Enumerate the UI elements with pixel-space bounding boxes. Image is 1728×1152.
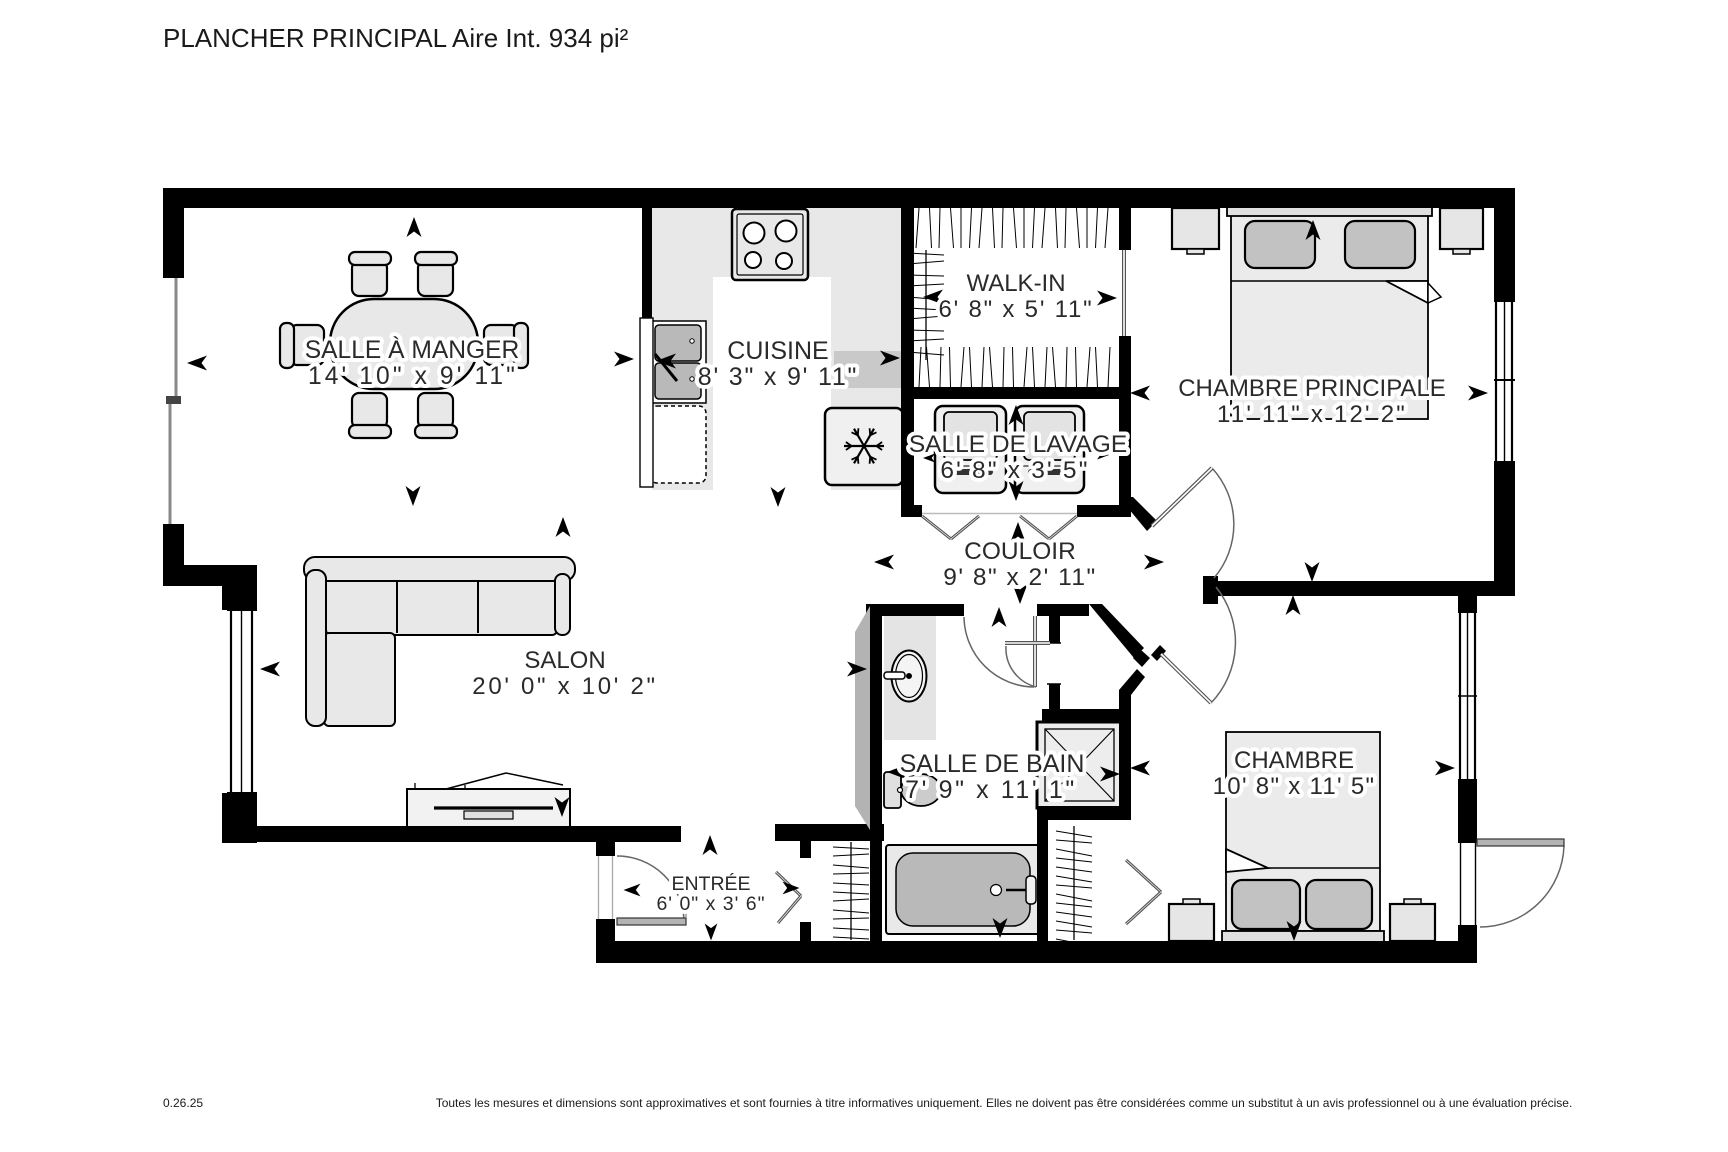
svg-text:8' 3" x 9' 11": 8' 3" x 9' 11" <box>698 363 858 391</box>
svg-text:CHAMBRE: CHAMBRE <box>1234 747 1354 774</box>
svg-text:6' 8" x 5' 11": 6' 8" x 5' 11" <box>938 296 1093 323</box>
svg-text:WALK-IN: WALK-IN <box>966 270 1065 297</box>
svg-text:Toutes les mesures et dimensio: Toutes les mesures et dimensions sont ap… <box>436 1096 1573 1110</box>
svg-text:0.26.25: 0.26.25 <box>163 1096 203 1110</box>
svg-text:6' 0" x 3' 6": 6' 0" x 3' 6" <box>656 893 765 915</box>
svg-text:14' 10" x 9' 11": 14' 10" x 9' 11" <box>308 363 518 390</box>
svg-text:6' 8" x 3' 5": 6' 8" x 3' 5" <box>940 457 1089 484</box>
svg-text:SALLE DE BAIN: SALLE DE BAIN <box>900 750 1085 778</box>
svg-text:11' 11" x 12' 2": 11' 11" x 12' 2" <box>1217 401 1407 428</box>
svg-text:COULOIR: COULOIR <box>964 538 1076 565</box>
svg-text:ENTRÉE: ENTRÉE <box>671 872 750 895</box>
svg-text:20' 0" x 10' 2": 20' 0" x 10' 2" <box>472 673 657 700</box>
svg-text:CHAMBRE PRINCIPALE: CHAMBRE PRINCIPALE <box>1178 375 1446 402</box>
svg-text:SALLE À MANGER: SALLE À MANGER <box>305 337 520 364</box>
svg-text:CUISINE: CUISINE <box>727 337 828 365</box>
svg-text:SALON: SALON <box>524 647 605 674</box>
svg-text:PLANCHER PRINCIPAL Aire Int. 9: PLANCHER PRINCIPAL Aire Int. 934 pi² <box>163 23 629 53</box>
svg-text:10' 8" x 11' 5": 10' 8" x 11' 5" <box>1213 773 1376 800</box>
svg-text:SALLE DE LAVAGE: SALLE DE LAVAGE <box>909 431 1127 458</box>
svg-text:9' 8" x 2' 11": 9' 8" x 2' 11" <box>943 564 1097 591</box>
svg-text:7' 9" x 11' 1": 7' 9" x 11' 1" <box>905 776 1077 804</box>
